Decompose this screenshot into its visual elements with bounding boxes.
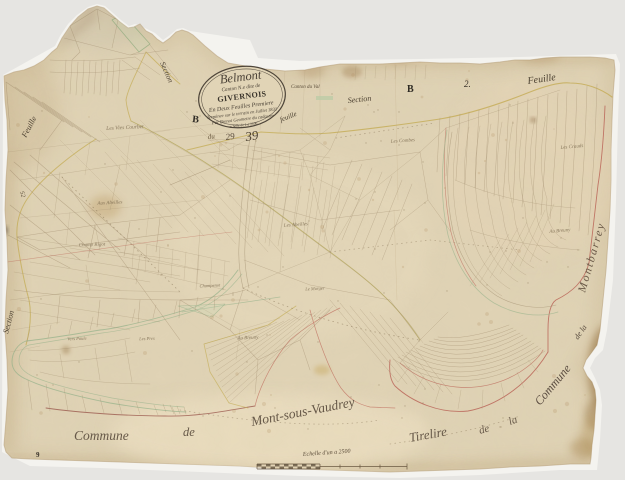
svg-text:du: du	[207, 132, 215, 141]
svg-text:Les Pres: Les Pres	[138, 336, 155, 342]
svg-text:2.: 2.	[464, 79, 471, 89]
svg-text:9: 9	[36, 451, 40, 459]
svg-text:de: de	[183, 425, 195, 439]
svg-text:Champ Rigot: Champ Rigot	[79, 243, 106, 249]
svg-text:B: B	[407, 84, 414, 95]
svg-text:Vers Paule: Vers Paule	[67, 336, 87, 342]
svg-text:Canton du Val: Canton du Val	[291, 85, 320, 90]
svg-text:39: 39	[243, 127, 259, 144]
svg-text:Commune: Commune	[74, 428, 129, 443]
svg-text:Le Murger: Le Murger	[304, 285, 325, 291]
